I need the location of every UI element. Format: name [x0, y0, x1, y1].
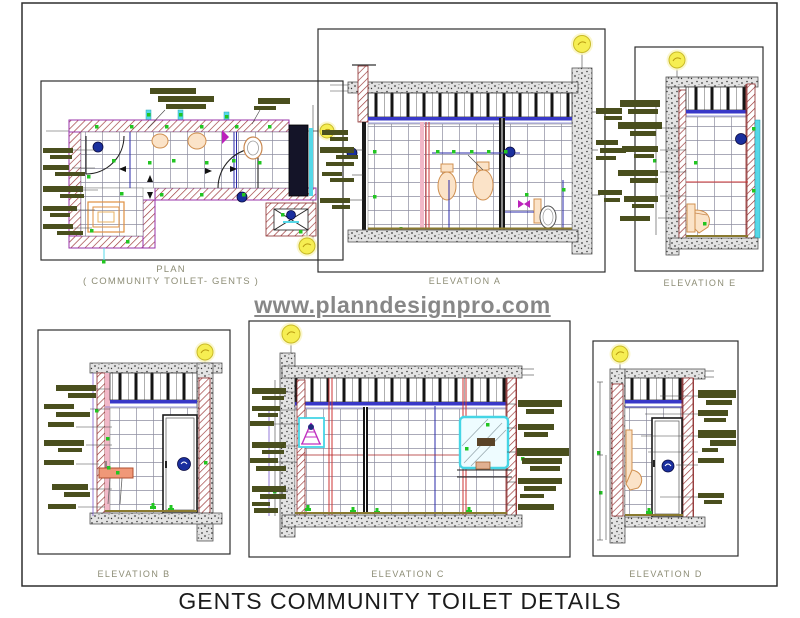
- wall-hatch: [97, 373, 105, 520]
- wall-hatch: [679, 90, 686, 248]
- floor-trap-icon: [287, 211, 296, 220]
- wall-hatch: [683, 378, 693, 517]
- urinal-partition: [499, 118, 505, 230]
- gents-signage-icon: [178, 458, 191, 471]
- floor-slab: [282, 515, 522, 527]
- annotation-block: [518, 424, 554, 437]
- elevation-e-panel: [618, 47, 763, 271]
- mirror: [460, 417, 508, 468]
- concrete-column: [572, 68, 592, 254]
- annotation-block: [622, 146, 658, 158]
- annotation-block: [518, 504, 554, 510]
- sign-board: [299, 418, 324, 447]
- annotation-block: [698, 410, 728, 422]
- plan-sublabel: ( COMMUNITY TOILET- GENTS ): [41, 276, 301, 287]
- annotation-block: [698, 430, 736, 452]
- vent-louver-band: [295, 378, 507, 402]
- annotation-block: [624, 196, 658, 208]
- washbasin-icon: [188, 133, 206, 149]
- elevation-b-panel: [38, 330, 230, 554]
- elevation-c-panel: [249, 321, 570, 557]
- wc-icon: [244, 137, 262, 159]
- annotation-block: [620, 100, 660, 114]
- annotation-block: [252, 406, 280, 417]
- urinal-fixture: [438, 164, 456, 200]
- annotation-block: [698, 493, 724, 504]
- ceiling-slab: [348, 82, 578, 93]
- sign-figure-icon: [308, 424, 314, 430]
- signage-icon: [736, 134, 747, 145]
- ceiling-slab: [666, 77, 758, 87]
- annotation-block: [48, 422, 74, 427]
- door-handle: [653, 460, 655, 467]
- wall-hatch: [747, 84, 755, 238]
- annotation-block: [150, 88, 214, 109]
- floor-trap-icon: [93, 142, 103, 152]
- floor-slab: [625, 517, 705, 527]
- annotation-block: [252, 388, 286, 400]
- watermark: www.planndesignpro.com: [225, 292, 580, 319]
- elevation-c-label: ELEVATION C: [288, 569, 528, 579]
- reference-bubble-icon: [571, 33, 593, 68]
- urinal-partition: [363, 407, 368, 513]
- wall-hatch: [199, 378, 210, 513]
- annotation-block: [56, 385, 96, 398]
- plan-label: PLAN: [41, 264, 301, 275]
- dimension-lines: [597, 382, 606, 540]
- elevation-d-label: ELEVATION D: [586, 569, 746, 579]
- annotation-block: [518, 400, 562, 414]
- duct-shaft: [289, 125, 313, 196]
- vent-louver-band: [368, 93, 572, 117]
- floor-slab: [348, 230, 578, 242]
- inspection-chamber: [266, 203, 316, 236]
- annotation-block: [44, 404, 90, 417]
- elevation-e-label: ELEVATION E: [630, 278, 770, 288]
- annotation-block: [518, 478, 562, 498]
- plan-panel: [41, 81, 343, 264]
- ceiling-line: [686, 110, 748, 114]
- floor-slab: [90, 513, 222, 524]
- ceiling-line: [110, 400, 197, 404]
- gents-signage-icon: [662, 460, 674, 472]
- annotation-block: [254, 98, 290, 110]
- annotation-block: [320, 198, 350, 209]
- ceiling-line: [625, 400, 683, 404]
- mirror-strip: [755, 120, 760, 238]
- elevation-d-panel: [593, 341, 738, 556]
- vent-louver-band: [625, 378, 683, 400]
- drawing-sheet: PLAN ( COMMUNITY TOILET- GENTS ) ELEVATI…: [0, 0, 800, 618]
- elevation-a-panel: [318, 29, 626, 272]
- annotation-block: [44, 460, 74, 465]
- annotation-block: [598, 190, 622, 202]
- annotation-block: [52, 484, 90, 497]
- annotation-block: [322, 172, 354, 182]
- annotation-block: [620, 216, 650, 221]
- elevation-b-label: ELEVATION B: [34, 569, 234, 579]
- reference-bubble-icon: [610, 344, 631, 370]
- annotation-block: [698, 458, 724, 463]
- ceiling-slab: [282, 366, 522, 378]
- annotation-block: [48, 504, 76, 509]
- annotation-block: [517, 448, 569, 471]
- annotation-block: [252, 442, 286, 454]
- vent-louver-band: [110, 373, 197, 400]
- ceiling-line: [295, 402, 507, 406]
- annotation-block: [250, 421, 274, 426]
- vent-louver-band: [686, 87, 748, 110]
- annotation-block: [43, 186, 84, 198]
- door-handle: [165, 461, 167, 468]
- concrete-column: [666, 87, 679, 255]
- annotation-block: [698, 390, 736, 405]
- wall-hatch: [612, 384, 623, 516]
- elevation-a-label: ELEVATION A: [345, 276, 585, 286]
- side-wall: [362, 122, 366, 230]
- door: [652, 418, 682, 517]
- annotation-block: [44, 440, 84, 452]
- ceiling-slab: [625, 369, 705, 379]
- wall-hatch: [358, 66, 368, 122]
- sheet-title: GENTS COMMUNITY TOILET DETAILS: [0, 588, 800, 615]
- floor-slab: [670, 238, 758, 249]
- door: [163, 415, 197, 513]
- annotation-block: [596, 108, 622, 120]
- annotation-block: [596, 140, 626, 160]
- annotation-block: [618, 122, 662, 136]
- annotation-block: [618, 170, 658, 183]
- ceiling-line: [368, 117, 572, 121]
- annotation-block: [254, 508, 278, 513]
- washbasin-icon: [152, 134, 168, 148]
